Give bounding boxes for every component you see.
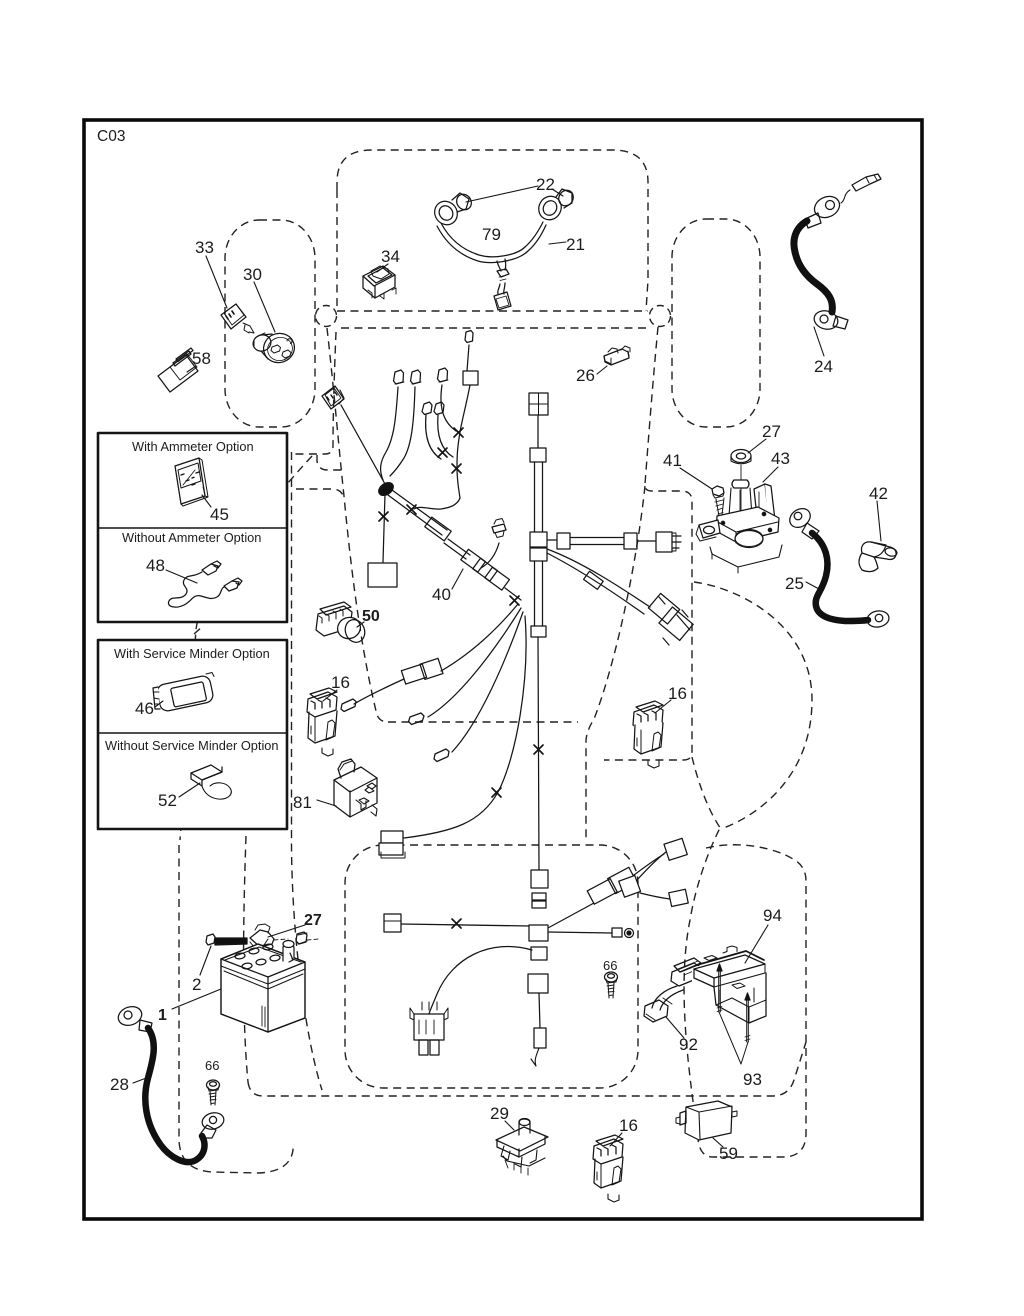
svg-text:34: 34 [381,247,400,266]
svg-text:81: 81 [293,793,312,812]
svg-text:27: 27 [762,422,781,441]
svg-text:66: 66 [603,958,617,973]
svg-text:29: 29 [490,1104,509,1123]
svg-text:With Service Minder Option: With Service Minder Option [114,646,270,661]
svg-text:2: 2 [192,975,201,994]
svg-text:Without Service Minder Option: Without Service Minder Option [105,738,279,753]
svg-text:Without Ammeter Option: Without Ammeter Option [122,530,261,545]
svg-text:16: 16 [331,673,350,692]
svg-text:24: 24 [814,357,833,376]
svg-text:79: 79 [482,225,501,244]
svg-text:93: 93 [743,1070,762,1089]
svg-text:40: 40 [432,585,451,604]
svg-text:43: 43 [771,449,790,468]
svg-text:With Ammeter Option: With Ammeter Option [132,439,254,454]
svg-text:C03: C03 [97,128,125,145]
svg-text:46: 46 [135,699,154,718]
svg-text:27: 27 [304,912,322,929]
svg-text:58: 58 [192,349,211,368]
svg-text:50: 50 [362,608,380,625]
svg-text:22: 22 [536,175,555,194]
svg-text:48: 48 [146,556,165,575]
svg-text:1: 1 [158,1007,167,1024]
svg-text:21: 21 [566,235,585,254]
svg-text:28: 28 [110,1075,129,1094]
svg-text:59: 59 [719,1144,738,1163]
svg-text:52: 52 [158,791,177,810]
svg-text:45: 45 [210,505,229,524]
svg-text:94: 94 [763,906,782,925]
svg-text:41: 41 [663,451,682,470]
svg-text:26: 26 [576,366,595,385]
svg-text:66: 66 [205,1058,219,1073]
svg-text:33: 33 [195,238,214,257]
svg-text:30: 30 [243,265,262,284]
svg-text:25: 25 [785,574,804,593]
svg-text:42: 42 [869,484,888,503]
svg-text:92: 92 [679,1035,698,1054]
svg-text:16: 16 [619,1116,638,1135]
svg-text:16: 16 [668,684,687,703]
